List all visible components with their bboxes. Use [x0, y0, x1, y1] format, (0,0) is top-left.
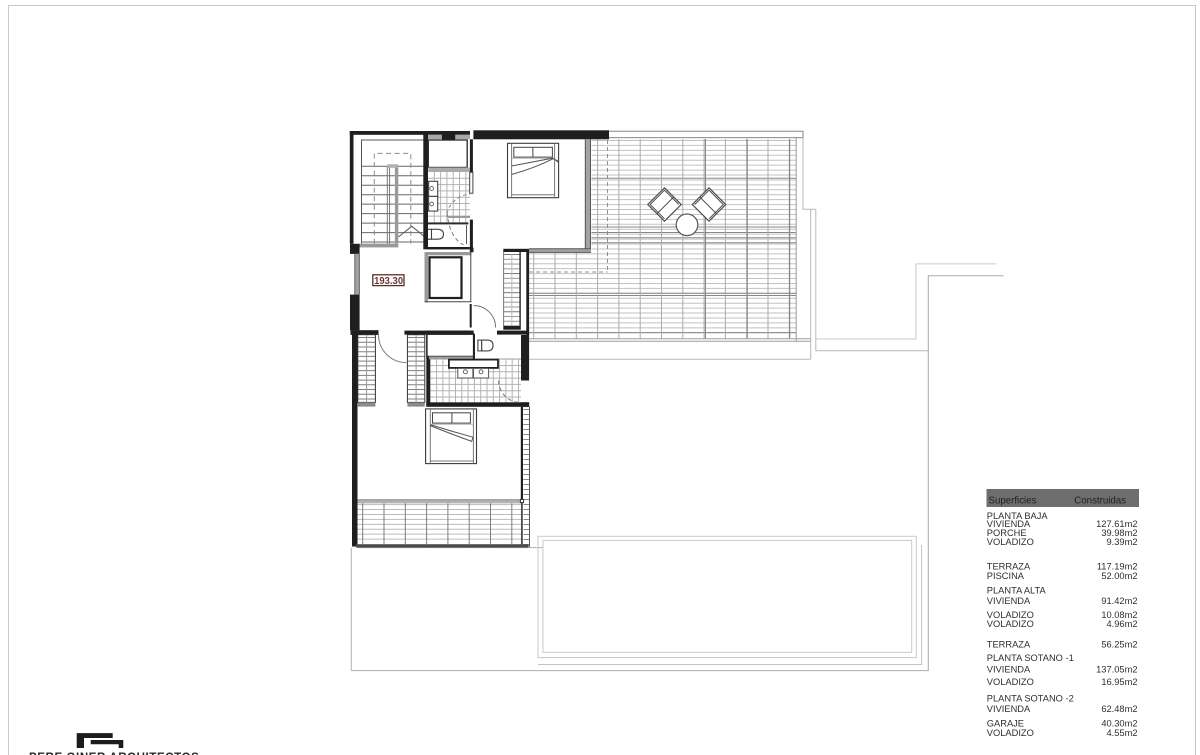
svg-text:VIVIENDA: VIVIENDA [987, 596, 1031, 606]
svg-text:91.42m2: 91.42m2 [1101, 596, 1137, 606]
svg-text:56.25m2: 56.25m2 [1101, 640, 1137, 650]
svg-text:VOLADIZO: VOLADIZO [987, 619, 1034, 629]
svg-text:PISCINA: PISCINA [987, 571, 1025, 581]
svg-text:VIVIENDA: VIVIENDA [987, 664, 1031, 674]
svg-text:193.30: 193.30 [374, 276, 404, 287]
svg-text:TERRAZA: TERRAZA [987, 640, 1031, 650]
svg-text:Superficies: Superficies [989, 496, 1037, 507]
svg-text:PLANTA ALTA: PLANTA ALTA [987, 585, 1047, 595]
svg-text:VOLADIZO: VOLADIZO [987, 677, 1034, 687]
svg-text:Construidas: Construidas [1074, 496, 1126, 507]
svg-text:PLANTA SOTANO -2: PLANTA SOTANO -2 [987, 693, 1074, 703]
svg-text:VOLADIZO: VOLADIZO [987, 728, 1034, 738]
svg-text:4.55m2: 4.55m2 [1106, 728, 1137, 738]
svg-text:9.39m2: 9.39m2 [1106, 537, 1137, 547]
svg-text:62.48m2: 62.48m2 [1101, 704, 1137, 714]
svg-text:52.00m2: 52.00m2 [1101, 571, 1137, 581]
svg-text:4.96m2: 4.96m2 [1106, 619, 1137, 629]
svg-text:VOLADIZO: VOLADIZO [987, 537, 1034, 547]
svg-text:VIVIENDA: VIVIENDA [987, 704, 1031, 714]
svg-text:16.95m2: 16.95m2 [1101, 677, 1137, 687]
svg-text:137.05m2: 137.05m2 [1096, 664, 1137, 674]
svg-text:PLANTA SOTANO -1: PLANTA SOTANO -1 [987, 653, 1074, 663]
